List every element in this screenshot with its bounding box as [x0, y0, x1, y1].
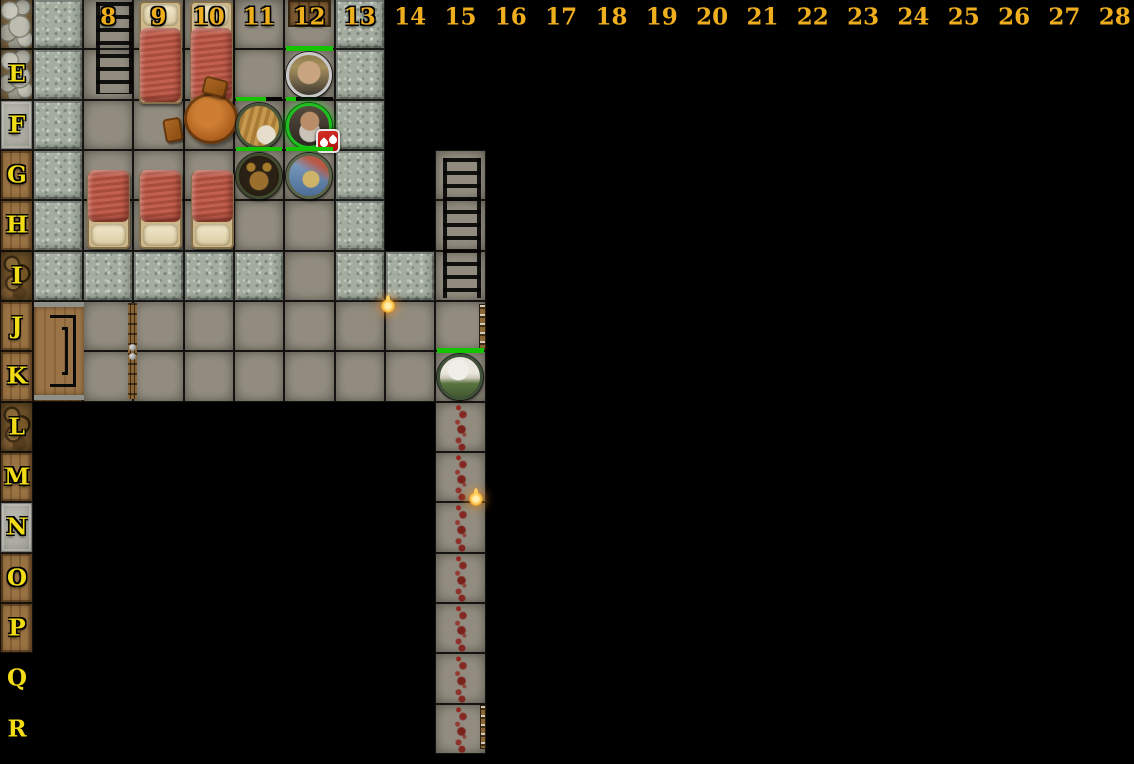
- grid-column-label-26: 26: [998, 4, 1030, 31]
- token-cell-f12: [284, 100, 334, 150]
- grid-column-label-27: 27: [1048, 4, 1080, 31]
- stool: [162, 117, 184, 144]
- grid-column-label-16: 16: [495, 4, 527, 31]
- grid-column-label-19: 19: [646, 4, 678, 31]
- grid-label-layer: 8910111213141516171819202122232425262728…: [0, 0, 1134, 764]
- door: [480, 705, 486, 749]
- grid-column-label-20: 20: [696, 4, 728, 31]
- vtt-map-viewport: 8910111213141516171819202122232425262728…: [0, 0, 1134, 764]
- grid-row-label-J: J: [12, 313, 23, 340]
- grid-row-label-G: G: [7, 162, 27, 189]
- token-e12-long-haired-blond-man-portrait[interactable]: [286, 52, 332, 98]
- health-bar: [286, 97, 332, 102]
- bed: [191, 171, 234, 249]
- grid-column-label-12: 12: [293, 4, 325, 31]
- grid-row-label-Q: Q: [7, 665, 27, 692]
- grid-row-label-F: F: [9, 111, 25, 138]
- bed: [87, 171, 130, 249]
- grid-column-label-11: 11: [243, 4, 275, 31]
- grid-column-label-8: 8: [100, 4, 116, 31]
- health-bar: [236, 147, 282, 152]
- bed: [139, 171, 182, 249]
- grid-row-label-R: R: [7, 715, 26, 742]
- grid-column-label-18: 18: [595, 4, 627, 31]
- token-cell-g11: [234, 150, 284, 200]
- token-g12-figure-with-banner-on-blue-sky[interactable]: [286, 153, 332, 199]
- token-k15-white-haired-elf-woman-in-green[interactable]: [437, 354, 483, 400]
- grid-column-label-10: 10: [193, 4, 225, 31]
- wooden-stairs: [34, 302, 84, 400]
- grid-row-label-P: P: [8, 615, 25, 642]
- health-bar-fill: [236, 147, 282, 152]
- grid-column-label-14: 14: [394, 4, 426, 31]
- token-cell-e12: [284, 49, 334, 99]
- grid-row-label-O: O: [7, 564, 27, 591]
- health-bar: [286, 46, 332, 51]
- torch-icon: [381, 299, 395, 313]
- grid-row-label-L: L: [9, 413, 25, 440]
- health-bar-fill: [286, 147, 332, 152]
- grid-column-label-25: 25: [948, 4, 980, 31]
- door: [479, 304, 486, 349]
- blood-drop-icon: [327, 134, 338, 145]
- grid-row-label-I: I: [12, 262, 23, 289]
- ladder-icon: [443, 158, 481, 298]
- grid-column-label-17: 17: [545, 4, 577, 31]
- grid-column-label-23: 23: [847, 4, 879, 31]
- torch-icon: [469, 492, 483, 506]
- token-cell-f11: [234, 100, 284, 150]
- health-bar-fill: [286, 97, 295, 102]
- door: [128, 303, 137, 399]
- grid-column-label-22: 22: [797, 4, 829, 31]
- token-g11-horned-helmet-warrior[interactable]: [236, 153, 282, 199]
- grid-row-label-N: N: [6, 514, 27, 541]
- grid-column-label-9: 9: [150, 4, 166, 31]
- grid-row-label-K: K: [7, 363, 27, 390]
- health-bar-fill: [437, 348, 483, 353]
- grid-column-label-15: 15: [444, 4, 476, 31]
- health-bar-fill: [286, 46, 332, 51]
- grid-row-label-M: M: [4, 464, 29, 491]
- grid-column-label-13: 13: [344, 4, 376, 31]
- health-bar-fill: [236, 97, 266, 102]
- health-bar: [437, 348, 483, 353]
- grid-row-label-E: E: [8, 61, 26, 88]
- grid-column-label-24: 24: [897, 4, 929, 31]
- grid-row-label-H: H: [6, 212, 28, 239]
- token-f11-tawny-furred-beast[interactable]: [236, 103, 282, 149]
- health-bar: [286, 147, 332, 152]
- token-cell-k15: [435, 351, 485, 401]
- health-bar: [236, 97, 282, 102]
- grid-column-label-21: 21: [746, 4, 778, 31]
- grid-column-label-28: 28: [1099, 4, 1131, 31]
- token-cell-g12: [284, 150, 334, 200]
- round-table: [184, 93, 238, 144]
